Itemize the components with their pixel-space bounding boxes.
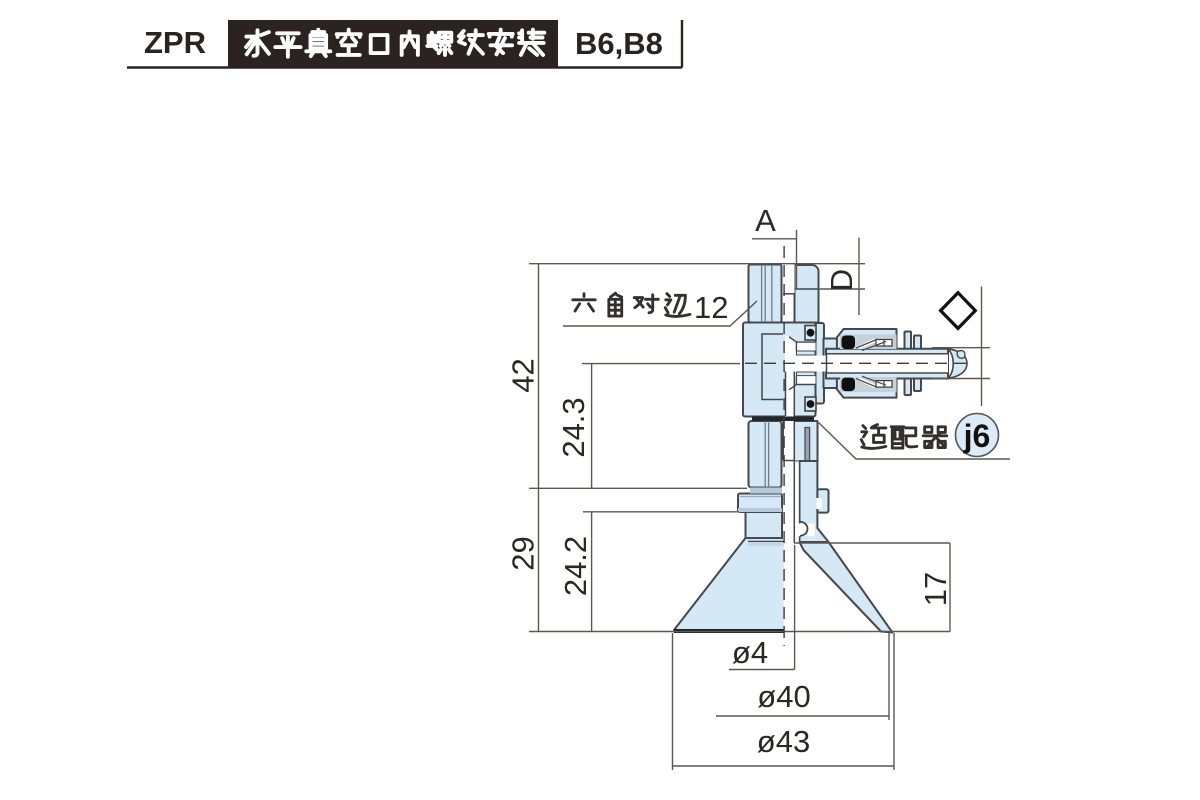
svg-text:A: A bbox=[755, 203, 776, 238]
svg-text:j6: j6 bbox=[963, 418, 991, 454]
svg-text:ø4: ø4 bbox=[732, 635, 768, 670]
svg-text:17: 17 bbox=[918, 572, 953, 606]
svg-text:D: D bbox=[824, 269, 859, 291]
svg-text:29: 29 bbox=[506, 536, 541, 570]
svg-text:ZPR: ZPR bbox=[144, 25, 206, 60]
svg-text:ø43: ø43 bbox=[757, 724, 810, 759]
svg-text:B6,B8: B6,B8 bbox=[575, 26, 663, 61]
svg-text:12: 12 bbox=[694, 290, 728, 325]
svg-text:42: 42 bbox=[506, 358, 541, 392]
svg-text:ø40: ø40 bbox=[757, 679, 810, 714]
svg-text:24.3: 24.3 bbox=[556, 397, 591, 457]
svg-text:24.2: 24.2 bbox=[558, 536, 593, 596]
